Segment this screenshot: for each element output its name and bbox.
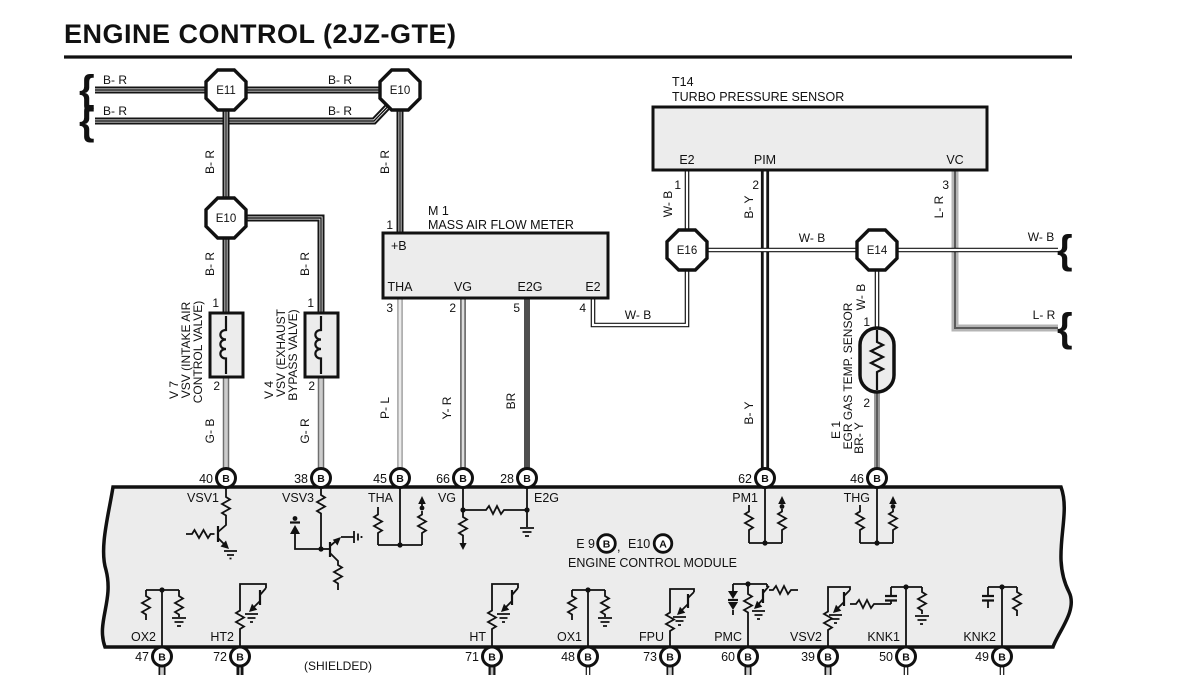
ecm-name: ENGINE CONTROL MODULE [568, 556, 737, 570]
turbo-pin-pim: PIM [754, 153, 776, 167]
svg-text:B: B [873, 473, 881, 485]
ecm-ref-part1: E 9 [576, 537, 595, 551]
turbo-sensor-box [653, 107, 987, 170]
wire-label-gr: G- R [298, 418, 312, 444]
ecm-pin-vsv1: B [217, 469, 236, 488]
maf-pinnum-tha: 3 [386, 301, 393, 315]
continuation-brace-right-1: { [1057, 228, 1073, 272]
ecm-pinnum-pm1: 62 [738, 472, 752, 486]
wiring-diagram: ENGINE CONTROL (2JZ-GTE) [0, 0, 1200, 675]
wire-label-br-6: B- R [378, 150, 392, 174]
maf-pin-e2g: E2G [517, 280, 542, 294]
junction-e10-lower: E10 [206, 198, 246, 238]
ecm-pin-ox1: B [579, 647, 598, 666]
ecm-pinnum-pmc: 60 [721, 650, 735, 664]
wire-label-br-1: B- R [103, 73, 127, 87]
ecm-pin-tha: B [391, 469, 410, 488]
junction-e10-lower-label: E10 [216, 213, 236, 225]
ecm-pin-fpu: B [661, 647, 680, 666]
wire-label-brown: BR [504, 392, 518, 409]
svg-text:B: B [158, 651, 166, 663]
ecm-pinname-vg: VG [438, 491, 456, 505]
ecm-pinname-vsv1: VSV1 [187, 491, 219, 505]
continuation-brace-left-2: { [79, 99, 95, 143]
maf-name: MASS AIR FLOW METER [428, 218, 574, 232]
wire-stubs-bottom [162, 666, 1002, 675]
maf-id: M 1 [428, 204, 449, 218]
junction-e11-label: E11 [216, 85, 236, 97]
maf-pin-vg: VG [454, 280, 472, 294]
ecm-pinnum-ox1: 48 [561, 650, 575, 664]
ecm-pinname-e2g: E2G [534, 491, 559, 505]
ecm-ref-comma: , [617, 540, 620, 554]
vsv-exhaust-pinnum-1: 1 [307, 296, 314, 310]
svg-text:B: B [459, 473, 467, 485]
turbo-name: TURBO PRESSURE SENSOR [672, 90, 844, 104]
junction-e16-label: E16 [677, 245, 697, 257]
ecm-pinname-pmc: PMC [714, 630, 742, 644]
maf-pinnum-b: 1 [386, 218, 393, 232]
ecm-pin-vsv3: B [312, 469, 331, 488]
turbo-pinnum-pim: 2 [752, 178, 759, 192]
wire-label-br-5: B- R [203, 150, 217, 174]
vsv-intake-pinnum-1: 1 [212, 296, 219, 310]
ecm-pinnum-tha: 45 [373, 472, 387, 486]
vsv-exhaust-pinnum-2: 2 [308, 379, 315, 393]
ecm-pinname-ox2: OX2 [131, 630, 156, 644]
ecm-pin-ht: B [483, 647, 502, 666]
ecm-pin-ht2: B [231, 647, 250, 666]
ecm-ref-conn2: A [659, 538, 667, 550]
wiring-diagram-page: ENGINE CONTROL (2JZ-GTE) [0, 0, 1200, 675]
ecm-pinnum-ht2: 72 [213, 650, 227, 664]
maf-pin-e2: E2 [585, 280, 600, 294]
ecm-pin-vg: B [454, 469, 473, 488]
page-title: ENGINE CONTROL (2JZ-GTE) [64, 19, 457, 49]
svg-text:B: B [236, 651, 244, 663]
ecm-pinname-vsv3: VSV3 [282, 491, 314, 505]
egr-pinnum-1: 1 [863, 315, 870, 329]
maf-pin-b: +B [391, 239, 407, 253]
turbo-pin-vc: VC [946, 153, 963, 167]
ecm-pinname-thg: THG [844, 491, 870, 505]
wire-label-yr: Y- R [440, 396, 454, 419]
svg-text:B: B [523, 473, 531, 485]
ecm-pinname-ht2: HT2 [210, 630, 234, 644]
ecm-pinnum-knk2: 49 [975, 650, 989, 664]
ecm-pinname-fpu: FPU [639, 630, 664, 644]
shielded-note: (SHIELDED) [304, 659, 372, 673]
svg-text:B: B [317, 473, 325, 485]
wire-label-by-1: B- Y [742, 195, 756, 218]
junction-e16: E16 [667, 230, 707, 270]
ecm-pinname-ht: HT [469, 630, 486, 644]
wire-label-by-2: B- Y [742, 401, 756, 424]
wire-label-wb-3: W- B [799, 231, 825, 245]
vsv-intake-pinnum-2: 2 [213, 379, 220, 393]
junction-e10-top: E10 [380, 70, 420, 110]
maf-box [383, 233, 608, 298]
wire-label-gb: G- B [203, 419, 217, 444]
ecm-pin-vsv2: B [819, 647, 838, 666]
ecm-ref-part2: E10 [628, 537, 650, 551]
egr-name: EGR GAS TEMP. SENSOR [841, 302, 855, 449]
maf-pinnum-e2: 4 [579, 301, 586, 315]
svg-text:B: B [761, 473, 769, 485]
turbo-id: T14 [672, 75, 694, 89]
vsv-intake-name2: CONTROL VALVE) [191, 301, 205, 403]
ecm-pin-e2g: B [518, 469, 537, 488]
wire-label-wb-1: W- B [625, 308, 651, 322]
svg-text:B: B [744, 651, 752, 663]
wire-label-pl: P- L [378, 397, 392, 419]
junction-e10-top-label: E10 [390, 85, 410, 97]
junction-e14-label: E14 [867, 245, 888, 257]
wire-label-wb-5: W- B [854, 284, 868, 310]
wire-label-br-2: B- R [328, 73, 352, 87]
turbo-pinnum-vc: 3 [942, 178, 949, 192]
ecm-pinnum-knk1: 50 [879, 650, 893, 664]
svg-text:B: B [666, 651, 674, 663]
maf-pinnum-vg: 2 [449, 301, 456, 315]
turbo-pin-e2: E2 [679, 153, 694, 167]
ecm-pinname-vsv2: VSV2 [790, 630, 822, 644]
ecm-pinnum-thg: 46 [850, 472, 864, 486]
ecm-pin-thg: B [868, 469, 887, 488]
ecm-pin-pm1: B [756, 469, 775, 488]
ecm-pinnum-vsv2: 39 [801, 650, 815, 664]
wire-label-br-3: B- R [103, 104, 127, 118]
svg-text:B: B [824, 651, 832, 663]
ecm-pin-ox2: B [153, 647, 172, 666]
ecm-pinnum-ht: 71 [465, 650, 479, 664]
wire-label-lr-2: L- R [1033, 308, 1056, 322]
ecm-pinname-ox1: OX1 [557, 630, 582, 644]
wire-label-br-4: B- R [328, 104, 352, 118]
turbo-pinnum-e2: 1 [674, 178, 681, 192]
ecm-ref-conn1: B [603, 538, 611, 550]
ecm-pinnum-vsv1: 40 [199, 472, 213, 486]
svg-text:B: B [222, 473, 230, 485]
wire-label-lr-1: L- R [932, 195, 946, 218]
ecm-pin-knk2: B [993, 647, 1012, 666]
wire-label-wb-2: W- B [661, 191, 675, 217]
svg-text:B: B [998, 651, 1006, 663]
vsv-exhaust-name2: BYPASS VALVE) [286, 309, 300, 400]
svg-text:B: B [902, 651, 910, 663]
junction-e14: E14 [857, 230, 897, 270]
maf-pin-tha: THA [388, 280, 414, 294]
ecm-pin-pmc: B [739, 647, 758, 666]
svg-text:B: B [488, 651, 496, 663]
ecm-pinnum-e2g: 28 [500, 472, 514, 486]
maf-pinnum-e2g: 5 [513, 301, 520, 315]
ecm-pinnum-vsv3: 38 [294, 472, 308, 486]
wire-label-wb-4: W- B [1028, 230, 1054, 244]
ecm-pinnum-ox2: 47 [135, 650, 149, 664]
ecm-pinnum-fpu: 73 [643, 650, 657, 664]
ecm-pinnum-vg: 66 [436, 472, 450, 486]
ecm-pinname-knk2: KNK2 [963, 630, 996, 644]
ecm-pinname-pm1: PM1 [732, 491, 758, 505]
egr-pinnum-2: 2 [863, 396, 870, 410]
continuation-brace-right-2: { [1057, 306, 1073, 350]
wire-label-br-8: B- R [298, 252, 312, 276]
svg-text:B: B [584, 651, 592, 663]
junction-e11: E11 [206, 70, 246, 110]
ecm-pinname-tha: THA [368, 491, 394, 505]
svg-text:B: B [396, 473, 404, 485]
ecm-pin-knk1: B [897, 647, 916, 666]
ecm-pinname-knk1: KNK1 [867, 630, 900, 644]
wire-label-br-7: B- R [203, 252, 217, 276]
